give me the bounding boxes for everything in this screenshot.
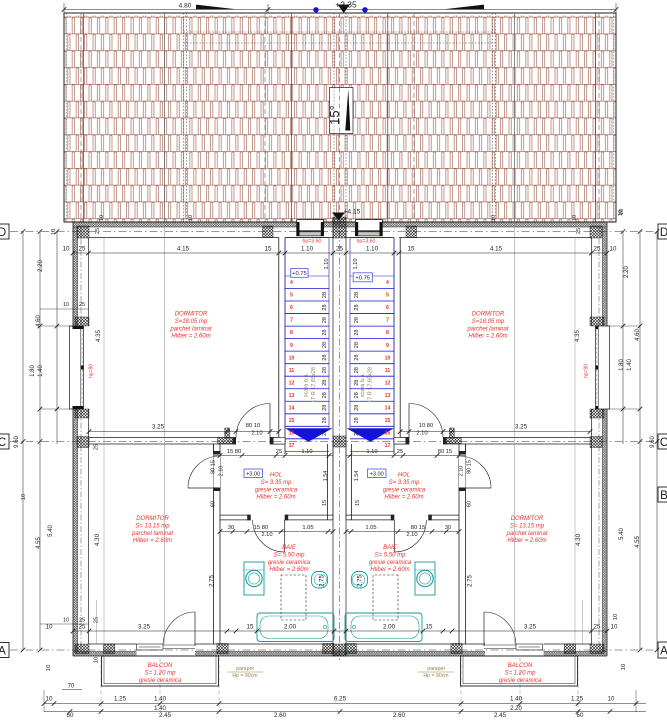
svg-text:13: 13 <box>289 393 295 399</box>
svg-text:28: 28 <box>322 430 328 436</box>
svg-text:S=18.05 mp: S=18.05 mp <box>472 319 505 325</box>
svg-text:DORMITOR: DORMITOR <box>511 516 544 522</box>
svg-text:15: 15 <box>265 246 272 253</box>
svg-text:25: 25 <box>79 246 86 253</box>
svg-text:25: 25 <box>79 618 85 624</box>
svg-text:Hliber = 2.60m: Hliber = 2.60m <box>256 495 295 501</box>
svg-text:10: 10 <box>46 696 53 703</box>
svg-text:4.60: 4.60 <box>36 315 42 327</box>
svg-text:Hp = 90cm: Hp = 90cm <box>232 673 257 679</box>
svg-text:10: 10 <box>572 215 578 221</box>
svg-text:DORMITOR: DORMITOR <box>175 312 208 318</box>
svg-text:1.80: 1.80 <box>30 365 36 377</box>
svg-text:15: 15 <box>408 246 415 253</box>
svg-text:2.45: 2.45 <box>494 712 507 719</box>
svg-text:10: 10 <box>188 215 194 221</box>
svg-text:2.75: 2.75 <box>210 575 216 587</box>
svg-text:HOL: HOL <box>398 473 410 479</box>
svg-text:28: 28 <box>354 367 360 373</box>
svg-text:4.55: 4.55 <box>635 536 641 548</box>
svg-text:15 80: 15 80 <box>227 449 242 455</box>
svg-text:3.25: 3.25 <box>515 424 528 431</box>
svg-text:2.75: 2.75 <box>358 575 364 587</box>
svg-text:11: 11 <box>385 368 391 374</box>
svg-text:6: 6 <box>290 305 293 311</box>
svg-text:10: 10 <box>94 657 100 663</box>
svg-text:6.25: 6.25 <box>334 696 347 703</box>
svg-text:Hliber = 2.60m: Hliber = 2.60m <box>384 495 423 501</box>
svg-text:1.54: 1.54 <box>354 471 360 482</box>
svg-text:BALCON: BALCON <box>148 663 173 669</box>
svg-text:28: 28 <box>354 342 360 348</box>
svg-text:hp=3.60: hp=3.60 <box>303 239 322 245</box>
svg-text:15: 15 <box>322 500 328 506</box>
svg-text:28: 28 <box>322 380 328 386</box>
svg-text:7: 7 <box>290 318 293 324</box>
svg-text:7: 7 <box>386 318 389 324</box>
svg-text:4.30: 4.30 <box>575 533 582 546</box>
svg-text:S= 1.20 mp: S= 1.20 mp <box>145 670 177 676</box>
svg-text:1.40: 1.40 <box>627 359 633 371</box>
svg-text:2.75: 2.75 <box>320 575 326 587</box>
svg-text:10: 10 <box>99 215 105 221</box>
svg-text:10: 10 <box>619 209 625 215</box>
svg-text:2.20: 2.20 <box>38 260 44 272</box>
svg-text:S= 13.15 mp: S= 13.15 mp <box>135 523 170 529</box>
svg-text:60: 60 <box>467 501 473 507</box>
svg-text:+0.75: +0.75 <box>355 276 370 282</box>
svg-text:10: 10 <box>63 246 70 253</box>
svg-text:5.40: 5.40 <box>619 528 625 540</box>
svg-text:4: 4 <box>386 280 389 286</box>
svg-text:4.35: 4.35 <box>574 329 581 342</box>
svg-text:+3.00: +3.00 <box>370 472 384 478</box>
svg-text:28: 28 <box>322 292 328 298</box>
svg-text:15: 15 <box>426 624 433 631</box>
svg-text:25: 25 <box>594 624 601 631</box>
svg-text:25: 25 <box>79 302 85 308</box>
svg-text:25: 25 <box>79 624 86 631</box>
svg-text:9.60: 9.60 <box>650 436 656 448</box>
svg-text:10: 10 <box>385 355 391 361</box>
svg-text:25: 25 <box>576 228 582 234</box>
svg-text:1.10: 1.10 <box>301 246 314 253</box>
svg-text:S= 1.20 mp: S= 1.20 mp <box>505 670 537 676</box>
svg-text:28: 28 <box>354 405 360 411</box>
svg-text:15: 15 <box>289 418 295 424</box>
svg-text:Hp = 90cm: Hp = 90cm <box>423 673 448 679</box>
svg-text:5: 5 <box>290 293 293 299</box>
svg-text:17 R 17,65x28: 17 R 17,65x28 <box>368 367 374 403</box>
svg-text:80 10: 80 10 <box>246 423 261 429</box>
svg-text:60: 60 <box>577 712 584 719</box>
svg-text:10: 10 <box>63 618 69 624</box>
svg-text:S= 3.35 mp: S= 3.35 mp <box>261 480 293 486</box>
svg-text:3.25: 3.25 <box>138 624 151 631</box>
svg-text:2.20: 2.20 <box>624 266 630 278</box>
svg-text:4.15: 4.15 <box>177 246 190 253</box>
svg-text:2.00: 2.00 <box>383 624 396 631</box>
svg-text:gresie ceramica: gresie ceramica <box>268 560 311 566</box>
svg-text:25: 25 <box>94 444 100 450</box>
svg-text:28: 28 <box>354 317 360 323</box>
svg-text:28: 28 <box>354 330 360 336</box>
svg-text:parapet: parapet <box>427 666 445 672</box>
svg-text:15: 15 <box>355 500 361 506</box>
svg-text:28: 28 <box>322 304 328 310</box>
svg-text:scara b.a.: scara b.a. <box>304 372 310 397</box>
svg-text:1.05: 1.05 <box>302 525 313 531</box>
svg-text:1.40: 1.40 <box>510 696 523 703</box>
svg-text:HOL: HOL <box>270 473 282 479</box>
svg-text:1.10: 1.10 <box>324 258 330 269</box>
svg-text:10: 10 <box>613 614 619 620</box>
svg-text:15°: 15° <box>327 105 342 125</box>
svg-text:28: 28 <box>322 342 328 348</box>
svg-text:15: 15 <box>385 418 391 424</box>
svg-text:60: 60 <box>211 501 217 507</box>
svg-text:10: 10 <box>46 624 53 631</box>
svg-text:hp=3.60: hp=3.60 <box>357 239 376 245</box>
svg-text:1.10: 1.10 <box>366 246 379 253</box>
svg-text:A: A <box>0 646 6 658</box>
svg-text:80 15: 80 15 <box>467 460 473 474</box>
svg-text:4.35: 4.35 <box>95 329 102 342</box>
svg-text:25: 25 <box>95 228 101 234</box>
svg-text:28: 28 <box>322 417 328 423</box>
svg-text:S= 3.35 mp: S= 3.35 mp <box>389 480 421 486</box>
svg-text:C: C <box>660 437 667 449</box>
svg-text:S= 13.15 mp: S= 13.15 mp <box>510 523 545 529</box>
svg-text:Hliber = 2.60m: Hliber = 2.60m <box>171 334 210 340</box>
svg-text:Hliber = 2.60m: Hliber = 2.60m <box>269 567 308 573</box>
svg-text:hp=90: hp=90 <box>89 364 95 378</box>
svg-text:28: 28 <box>322 367 328 373</box>
svg-text:1.05: 1.05 <box>365 525 376 531</box>
svg-text:1.40: 1.40 <box>38 365 44 377</box>
svg-text:4.30: 4.30 <box>94 533 101 546</box>
svg-text:10: 10 <box>21 494 27 500</box>
svg-text:1.25: 1.25 <box>571 696 584 703</box>
svg-text:28: 28 <box>322 392 328 398</box>
svg-text:C: C <box>0 437 6 449</box>
svg-text:17 R 17,65x28: 17 R 17,65x28 <box>311 367 317 403</box>
svg-text:25: 25 <box>336 246 343 253</box>
svg-text:14: 14 <box>385 405 391 411</box>
svg-text:10: 10 <box>51 229 57 235</box>
svg-text:1.25: 1.25 <box>114 696 127 703</box>
svg-text:2.60: 2.60 <box>274 712 287 719</box>
svg-text:gresie ceramica: gresie ceramica <box>369 560 412 566</box>
svg-text:1.80: 1.80 <box>619 359 625 371</box>
svg-text:1.10: 1.10 <box>301 449 312 455</box>
svg-text:10: 10 <box>46 665 52 671</box>
svg-text:S=18.05 mp: S=18.05 mp <box>175 319 208 325</box>
svg-text:28: 28 <box>322 330 328 336</box>
svg-text:4.60: 4.60 <box>635 329 641 341</box>
svg-text:15 80: 15 80 <box>254 525 269 531</box>
svg-text:scara b.a.: scara b.a. <box>360 372 366 397</box>
svg-text:+3.00: +3.00 <box>246 472 260 478</box>
svg-text:2.60: 2.60 <box>393 712 406 719</box>
svg-text:2.10: 2.10 <box>261 532 272 538</box>
svg-text:17: 17 <box>385 443 391 449</box>
svg-text:D: D <box>0 227 6 239</box>
svg-text:8: 8 <box>290 330 293 336</box>
svg-text:Hliber = 2.60m: Hliber = 2.60m <box>133 538 172 544</box>
svg-text:parchet laminat: parchet laminat <box>131 531 173 537</box>
svg-text:28: 28 <box>322 355 328 361</box>
svg-text:4.55: 4.55 <box>36 537 42 549</box>
svg-text:25: 25 <box>594 246 601 253</box>
svg-text:17: 17 <box>289 443 295 449</box>
svg-text:1.40: 1.40 <box>154 696 167 703</box>
svg-text:70: 70 <box>68 684 75 690</box>
svg-text:28: 28 <box>354 292 360 298</box>
svg-text:BAIE: BAIE <box>282 545 297 551</box>
svg-text:4.80: 4.80 <box>179 3 192 10</box>
svg-text:12: 12 <box>289 380 295 386</box>
svg-text:2.75: 2.75 <box>468 575 474 587</box>
svg-text:16: 16 <box>289 430 295 436</box>
svg-text:2.00: 2.00 <box>284 624 297 631</box>
svg-text:parchet laminat: parchet laminat <box>169 326 211 332</box>
svg-text:B: B <box>660 490 667 502</box>
svg-text:28: 28 <box>354 355 360 361</box>
svg-text:10: 10 <box>621 664 627 670</box>
svg-text:2.10: 2.10 <box>416 431 427 437</box>
svg-text:30: 30 <box>228 525 234 531</box>
svg-text:6: 6 <box>386 305 389 311</box>
svg-text:60: 60 <box>67 712 74 719</box>
svg-text:10: 10 <box>611 624 618 631</box>
svg-text:Hliber = 2.60m: Hliber = 2.60m <box>370 567 409 573</box>
svg-text:BAIE: BAIE <box>383 545 398 551</box>
svg-text:S= 5.50 mp: S= 5.50 mp <box>375 552 407 558</box>
svg-text:15: 15 <box>247 624 254 631</box>
svg-text:9: 9 <box>386 343 389 349</box>
svg-text:hp=90: hp=90 <box>584 364 590 378</box>
svg-text:D: D <box>660 227 667 239</box>
svg-text:4: 4 <box>290 280 293 286</box>
svg-text:5: 5 <box>386 293 389 299</box>
svg-text:5.40: 5.40 <box>48 525 54 537</box>
svg-text:10: 10 <box>491 215 497 221</box>
svg-text:9: 9 <box>290 343 293 349</box>
svg-text:80 15: 80 15 <box>438 449 453 455</box>
svg-text:gresie ceramica: gresie ceramica <box>499 678 542 684</box>
svg-text:BALCON: BALCON <box>508 663 533 669</box>
svg-text:4.15: 4.15 <box>490 246 503 253</box>
svg-text:16: 16 <box>385 430 391 436</box>
svg-text:parchet laminat: parchet laminat <box>505 531 547 537</box>
svg-text:1.10: 1.10 <box>353 258 359 269</box>
svg-text:gresie ceramica: gresie ceramica <box>383 487 426 493</box>
svg-text:2.45: 2.45 <box>159 712 172 719</box>
svg-text:gresie ceramica: gresie ceramica <box>255 487 298 493</box>
svg-text:2.10: 2.10 <box>251 431 262 437</box>
svg-text:25: 25 <box>397 449 403 455</box>
svg-text:9.60: 9.60 <box>14 436 20 448</box>
svg-text:1.54: 1.54 <box>323 471 329 482</box>
svg-text:parchet laminat: parchet laminat <box>466 326 508 332</box>
svg-text:DORMITOR: DORMITOR <box>472 312 505 318</box>
svg-text:80 15: 80 15 <box>211 460 217 474</box>
svg-text:28: 28 <box>322 405 328 411</box>
svg-text:Hliber = 2.60m: Hliber = 2.60m <box>507 538 546 544</box>
svg-text:11: 11 <box>289 368 295 374</box>
svg-text:3.25: 3.25 <box>524 624 537 631</box>
svg-text:2.10: 2.10 <box>219 466 225 477</box>
svg-text:3.25: 3.25 <box>152 424 165 431</box>
svg-text:8: 8 <box>386 330 389 336</box>
svg-text:2.10: 2.10 <box>459 466 465 477</box>
svg-text:gresie ceramica: gresie ceramica <box>139 678 182 684</box>
svg-text:25: 25 <box>276 449 282 455</box>
svg-text:+4.15: +4.15 <box>344 209 361 216</box>
svg-text:14: 14 <box>289 405 295 411</box>
svg-text:13: 13 <box>385 393 391 399</box>
svg-text:2.20: 2.20 <box>510 706 522 712</box>
svg-text:28: 28 <box>354 304 360 310</box>
svg-text:parapet: parapet <box>236 666 254 672</box>
svg-text:80 15: 80 15 <box>411 525 426 531</box>
svg-text:S= 5.50 mp: S= 5.50 mp <box>274 552 306 558</box>
svg-text:10 80: 10 80 <box>419 423 434 429</box>
svg-text:30: 30 <box>445 525 451 531</box>
svg-text:10: 10 <box>608 696 615 703</box>
svg-text:10: 10 <box>610 246 617 253</box>
svg-text:10: 10 <box>63 302 69 308</box>
svg-text:1.10: 1.10 <box>366 449 377 455</box>
svg-text:12: 12 <box>385 380 391 386</box>
svg-text:2.10: 2.10 <box>406 532 417 538</box>
svg-text:28: 28 <box>354 417 360 423</box>
svg-text:+0.75: +0.75 <box>292 271 307 277</box>
svg-text:A: A <box>660 646 667 658</box>
svg-text:28: 28 <box>354 430 360 436</box>
svg-text:28: 28 <box>322 317 328 323</box>
svg-text:10: 10 <box>289 355 295 361</box>
svg-text:Hliber = 2.60m: Hliber = 2.60m <box>468 334 507 340</box>
